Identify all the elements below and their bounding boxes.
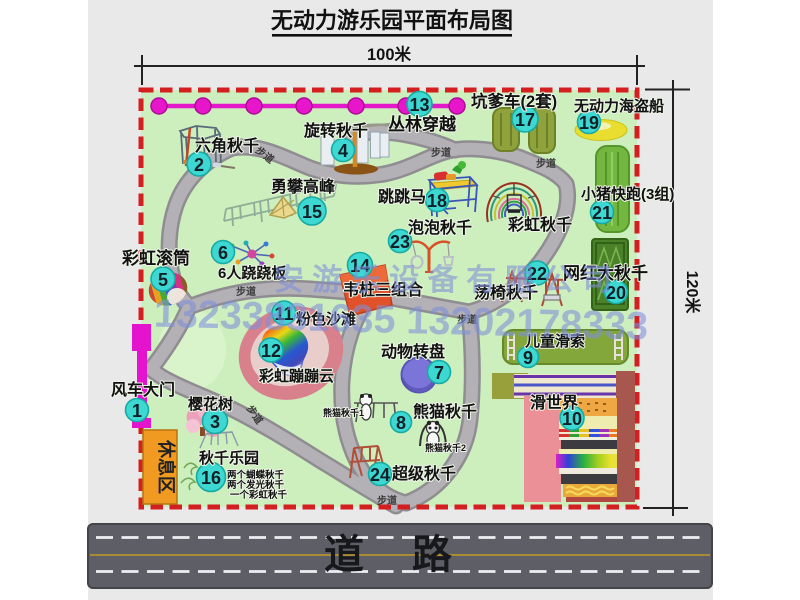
svg-text:泡泡秋千: 泡泡秋千 xyxy=(408,218,472,237)
svg-text:16: 16 xyxy=(201,468,221,488)
svg-text:风车大门: 风车大门 xyxy=(111,380,175,399)
svg-text:19: 19 xyxy=(579,113,599,133)
svg-text:一个彩虹秋千: 一个彩虹秋千 xyxy=(230,489,288,501)
svg-text:超级秋千: 超级秋千 xyxy=(391,464,456,483)
svg-text:熊猫秋千1: 熊猫秋千1 xyxy=(323,407,364,418)
svg-text:动物转盘: 动物转盘 xyxy=(381,342,445,361)
svg-text:无动力游乐园平面布局图: 无动力游乐园平面布局图 xyxy=(271,8,513,33)
svg-text:9: 9 xyxy=(523,348,533,368)
svg-text:彩虹滚筒: 彩虹滚筒 xyxy=(121,248,190,268)
svg-text:道: 道 xyxy=(324,533,364,577)
svg-text:120米: 120米 xyxy=(683,271,702,315)
svg-text:5: 5 xyxy=(158,270,168,290)
svg-text:12: 12 xyxy=(261,341,281,361)
svg-text:小猪快跑(3组): 小猪快跑(3组) xyxy=(581,185,674,203)
svg-text:7: 7 xyxy=(434,363,444,383)
svg-text:坑爹车(2套): 坑爹车(2套) xyxy=(471,91,557,111)
svg-text:秋千乐园: 秋千乐园 xyxy=(199,449,259,467)
svg-text:步道: 步道 xyxy=(431,146,451,159)
svg-text:熊猫秋千: 熊猫秋千 xyxy=(413,402,477,421)
svg-text:6: 6 xyxy=(218,243,228,263)
svg-text:2: 2 xyxy=(194,155,204,175)
svg-text:100米: 100米 xyxy=(367,44,412,64)
svg-text:18: 18 xyxy=(427,191,447,211)
svg-text:步道: 步道 xyxy=(377,494,397,507)
svg-text:无动力海盗船: 无动力海盗船 xyxy=(573,97,664,115)
svg-text:彩虹秋千: 彩虹秋千 xyxy=(507,215,572,234)
svg-text:23: 23 xyxy=(390,232,410,252)
svg-text:丛林穿越: 丛林穿越 xyxy=(388,114,457,134)
svg-text:旋转秋千: 旋转秋千 xyxy=(303,121,368,140)
svg-text:4: 4 xyxy=(338,141,348,161)
svg-text:21: 21 xyxy=(592,203,612,223)
svg-text:24: 24 xyxy=(370,465,390,485)
svg-text:安游乐设备有限公司: 安游乐设备有限公司 xyxy=(274,263,621,297)
svg-text:步道: 步道 xyxy=(536,157,556,170)
svg-text:跳跳马: 跳跳马 xyxy=(378,187,426,206)
svg-text:休息区: 休息区 xyxy=(156,439,177,494)
svg-text:六角秋千: 六角秋千 xyxy=(195,136,259,155)
svg-text:13: 13 xyxy=(409,95,429,115)
svg-text:勇攀高峰: 勇攀高峰 xyxy=(271,177,336,196)
svg-text:熊猫秋千2: 熊猫秋千2 xyxy=(425,442,466,453)
svg-text:滑世界: 滑世界 xyxy=(530,394,578,412)
svg-text:1: 1 xyxy=(132,401,142,421)
svg-text:3: 3 xyxy=(210,412,220,432)
svg-text:17: 17 xyxy=(515,110,535,130)
svg-text:8: 8 xyxy=(396,413,406,433)
svg-text:路: 路 xyxy=(412,533,453,577)
svg-text:樱花树: 樱花树 xyxy=(188,395,233,413)
svg-text:15: 15 xyxy=(302,202,322,222)
svg-text:彩虹蹦蹦云: 彩虹蹦蹦云 xyxy=(258,367,334,385)
svg-text:10: 10 xyxy=(562,409,582,429)
